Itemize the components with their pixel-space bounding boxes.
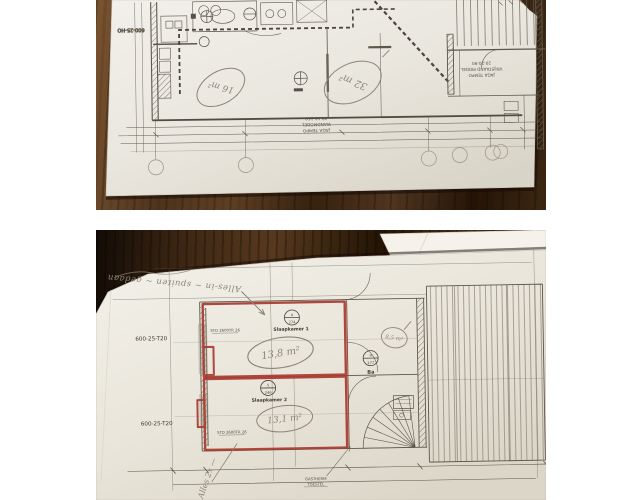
plan-code-label: 600-25-HO bbox=[117, 26, 144, 32]
heater-wall-line-2: WANDMODEL bbox=[301, 121, 331, 127]
heater-free-line-3: 20-20-90 bbox=[472, 61, 491, 66]
room2-label: Slaapkamer 2 bbox=[252, 397, 288, 404]
heater-free-line-1: JAGA TEMPO bbox=[468, 73, 496, 78]
photo-bottom-floorplan: 4 274 5 246 9 177 Slaapkamer 1 Slaapkame… bbox=[96, 230, 546, 500]
margin-code-1: 600-25-T20 bbox=[135, 336, 167, 343]
fridge-hatched bbox=[158, 74, 171, 98]
bath-label: Ba bbox=[367, 370, 374, 376]
heater-free-line-2: VRIJSTAAND MODEL bbox=[460, 66, 503, 72]
bath-tag-value: 177 bbox=[367, 361, 374, 365]
photo-top-floorplan: 600-25-HO JAGA TEMPO WANDMODEL 30-10-160… bbox=[96, 0, 546, 210]
heater-wall-label-block: JAGA TEMPO WANDMODEL 30-10-160 bbox=[301, 115, 331, 133]
floorplan-bottom-drawing: 4 274 5 246 9 177 Slaapkamer 1 Slaapkame… bbox=[96, 230, 546, 500]
bath-tag: 9 177 bbox=[363, 351, 378, 366]
room1-tag: 4 274 bbox=[284, 310, 299, 325]
fixture-blob-2 bbox=[294, 88, 303, 91]
boiler-label-line-2: TOESTEL bbox=[306, 481, 325, 486]
wall-spec-label-2: STD 2600TR 26 bbox=[217, 429, 247, 435]
room1-label: Slaapkamer 1 bbox=[273, 326, 309, 333]
wall-spec-label-1: STD 2600TR 26 bbox=[210, 327, 240, 333]
page: { "colors": { "red_marker": "#a93b30", "… bbox=[0, 0, 640, 500]
fixture-blob-1 bbox=[191, 14, 196, 19]
heater-wall-line-1: JAGA TEMPO bbox=[302, 127, 330, 133]
decking-planks bbox=[426, 284, 545, 462]
margin-code-2: 600-25-T20 bbox=[141, 421, 173, 428]
room2-tag-number: 5 bbox=[267, 384, 269, 388]
counter-wall bbox=[153, 44, 197, 45]
heater-wall-line-3: 30-10-160 bbox=[305, 115, 328, 121]
room2-tag: 5 246 bbox=[261, 380, 276, 395]
floorplan-top-drawing: 600-25-HO JAGA TEMPO WANDMODEL 30-10-160… bbox=[96, 0, 546, 210]
room2-tag-value: 246 bbox=[265, 391, 273, 395]
room1-tag-value: 274 bbox=[289, 320, 297, 324]
inner-wall-1-solid bbox=[327, 54, 328, 92]
planks-fill bbox=[426, 284, 545, 462]
